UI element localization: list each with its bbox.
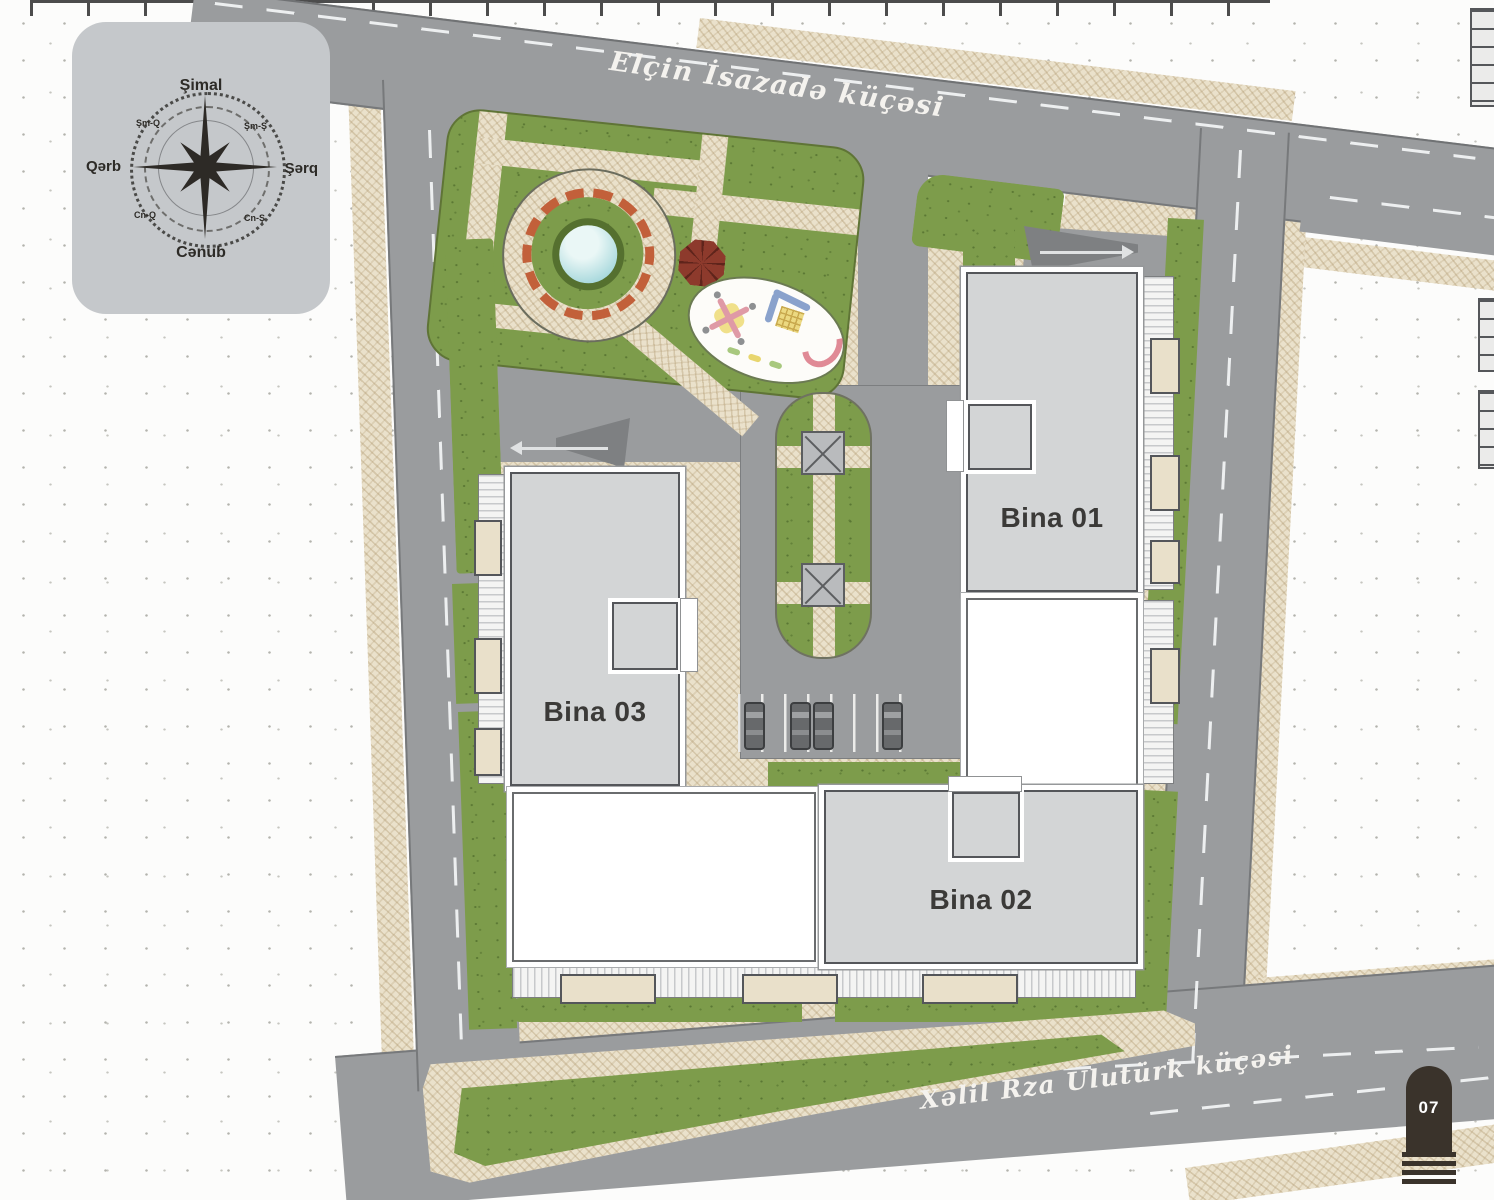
building-label: Bina 03	[512, 696, 678, 728]
balcony-notch	[474, 638, 502, 694]
page-number: 07	[1406, 1098, 1452, 1118]
compass-se-label: Cn-Ş	[244, 213, 265, 223]
building-label: Bina 02	[826, 884, 1136, 916]
balcony-notch	[1150, 648, 1180, 704]
pavilion-icon-1	[801, 431, 845, 475]
building-bina02-entrance	[952, 792, 1020, 858]
compass-sw-label: Cn-Q	[134, 210, 156, 220]
carousel-icon	[701, 291, 756, 346]
car-icon	[813, 702, 834, 750]
building-bina02-entrance-canopy	[948, 776, 1022, 792]
compass-east-label: Şərq	[285, 160, 318, 177]
compass-west-label: Qərb	[86, 158, 121, 175]
balcony-notch	[1150, 540, 1180, 584]
balcony-notch	[922, 974, 1018, 1004]
seesaw-icon	[726, 345, 786, 371]
parking-area	[738, 694, 918, 752]
neighbour-structure	[1478, 390, 1494, 469]
arrow-left-icon	[510, 441, 522, 455]
compass-panel: Şimal Cənub Qərb Şərq Şm-Q Şm-Ş Cn-Q Cn-…	[72, 22, 330, 314]
balcony-notch	[1150, 455, 1180, 511]
building-block-b[interactable]	[966, 598, 1138, 788]
compass-north-label: Şimal	[72, 77, 330, 95]
building-bina01-entrance-canopy	[946, 400, 964, 472]
balcony-notch	[1150, 338, 1180, 394]
balcony-notch	[560, 974, 656, 1004]
building-block-a[interactable]	[512, 792, 816, 962]
page-marker: 07	[1406, 1066, 1452, 1152]
building-label: Bina 01	[968, 502, 1136, 534]
exit-arrow-line	[522, 447, 608, 450]
balcony-notch	[474, 728, 502, 776]
neighbour-structure	[1478, 298, 1494, 372]
building-bina01-entrance	[968, 404, 1032, 470]
lawn-below-parking	[768, 762, 964, 786]
compass-south-label: Cənub	[72, 244, 330, 262]
car-icon	[882, 702, 903, 750]
neighbour-structure	[1470, 8, 1494, 107]
compass-nw-label: Şm-Q	[136, 118, 160, 128]
building-bina03-entrance	[612, 602, 678, 670]
driveway-north-vertical	[858, 105, 928, 400]
page-marker-stripes	[1402, 1152, 1456, 1184]
entry-arrow-line	[1040, 251, 1124, 254]
pavilion-icon-2	[801, 563, 845, 607]
arrow-right-icon	[1122, 245, 1134, 259]
lawn-bina01-entry	[963, 222, 1015, 270]
building-bina03-entrance-canopy	[680, 598, 698, 672]
compass-ne-label: Şm-Ş	[244, 121, 267, 131]
balcony-notch	[742, 974, 838, 1004]
site-plan-canvas: Bina 03 Bina 01 Bina 02 Şimal Cənub Qərb…	[0, 0, 1494, 1200]
car-icon	[744, 702, 765, 750]
car-icon	[790, 702, 811, 750]
balcony-notch	[474, 520, 502, 576]
park-path-upper-east	[652, 188, 860, 235]
